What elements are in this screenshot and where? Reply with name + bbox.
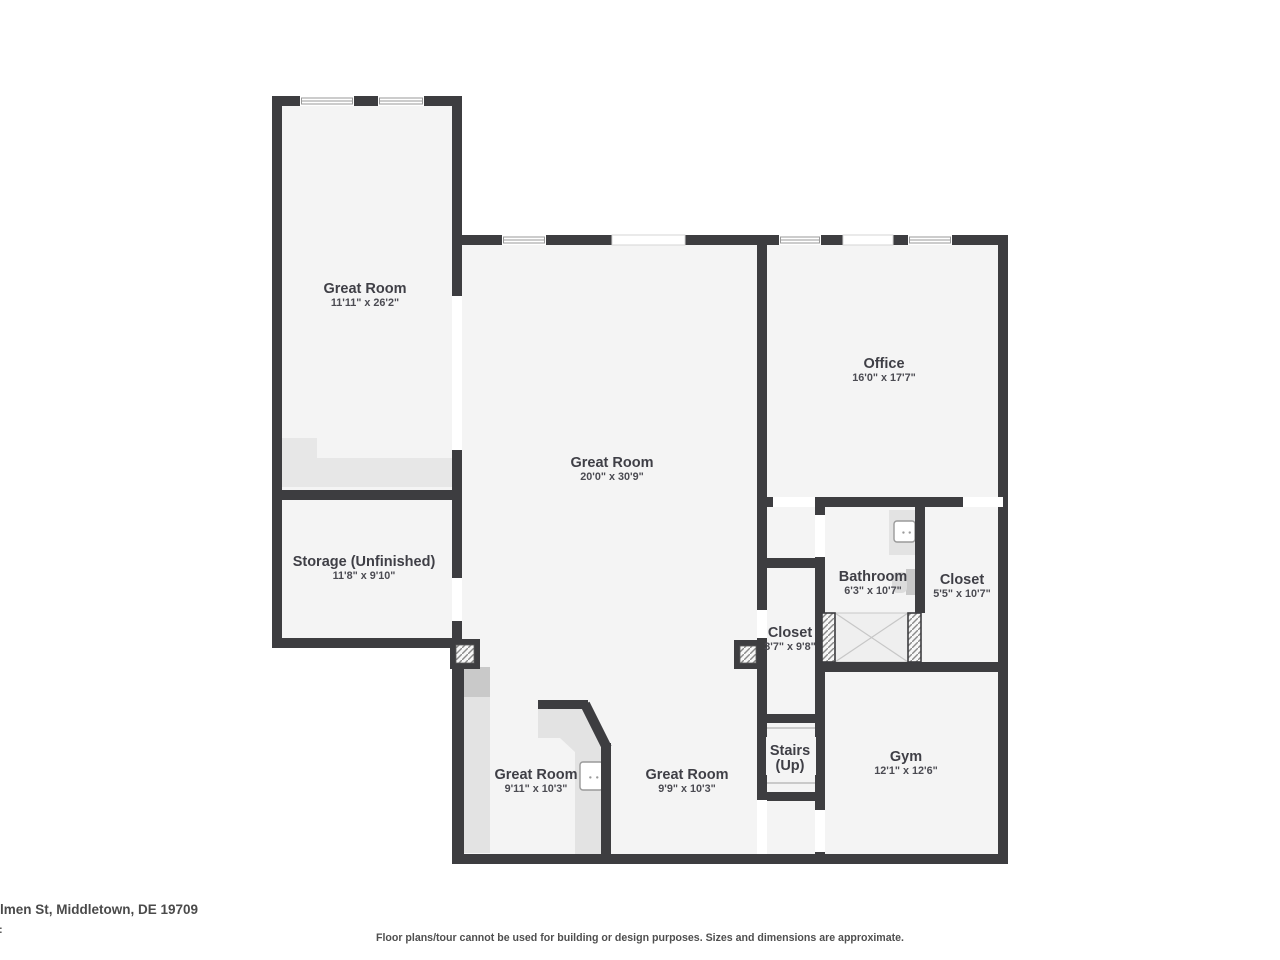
door-opening	[757, 610, 767, 638]
room-label-great-room: Great Room9'11" x 10'3"	[495, 767, 578, 795]
disclaimer-text: Floor plans/tour cannot be used for buil…	[0, 932, 1280, 944]
bathroom-sink	[894, 521, 915, 542]
wall	[452, 450, 462, 578]
wall	[272, 638, 462, 648]
wall	[757, 792, 822, 801]
room-label-great-room: Great Room11'11" x 26'2"	[324, 281, 407, 309]
wall	[815, 662, 1008, 672]
room-label-closet: Closet3'7" x 9'8"	[764, 625, 815, 653]
door-opening	[963, 497, 1003, 507]
room-dimensions: 9'9" x 10'3"	[658, 783, 715, 795]
room-dimensions: 9'11" x 10'3"	[505, 783, 568, 795]
room-name: Closet	[768, 625, 812, 641]
room-dimensions: 5'5" x 10'7"	[933, 588, 990, 600]
faucet-dot	[902, 531, 904, 533]
faucet-dot	[909, 531, 911, 533]
door-opening	[757, 800, 767, 854]
appliance	[460, 667, 490, 697]
jamb-hatch	[822, 613, 835, 662]
faucet-dot	[589, 776, 591, 778]
wall	[455, 854, 1008, 864]
room-dimensions: 11'11" x 26'2"	[331, 297, 399, 309]
wall	[452, 647, 464, 864]
room-name: Stairs	[770, 743, 810, 759]
wall	[757, 245, 767, 497]
wall	[272, 96, 282, 647]
door-opening	[452, 296, 462, 450]
room-label-stairs: Stairs(Up)	[770, 743, 810, 774]
column-hatch	[740, 646, 756, 663]
room-name: Great Room	[646, 767, 729, 783]
wall	[915, 507, 925, 613]
understairs-area	[277, 458, 453, 487]
door-opening	[815, 515, 825, 557]
door-opening	[452, 578, 462, 621]
door-opening	[773, 497, 815, 507]
room-name: Gym	[890, 749, 922, 765]
room-name-line2: (Up)	[776, 758, 805, 774]
jamb-hatch	[908, 613, 921, 662]
room-label-great-room: Great Room20'0" x 30'9"	[571, 455, 654, 483]
wall-opening	[612, 235, 685, 245]
room-name: Office	[863, 356, 904, 372]
column-hatch	[456, 645, 474, 663]
room-name: Great Room	[324, 281, 407, 297]
kitchen-sink	[580, 762, 603, 790]
wall	[538, 700, 588, 709]
faucet-dot	[596, 776, 598, 778]
room-name: Closet	[940, 572, 984, 588]
wall	[998, 235, 1008, 864]
wall	[272, 490, 462, 500]
floor-plan: Great Room11'11" x 26'2"Great Room20'0" …	[0, 0, 1280, 960]
wall	[757, 558, 825, 568]
room-dimensions: 11'8" x 9'10"	[333, 570, 396, 582]
room-label-bathroom: Bathroom6'3" x 10'7"	[839, 569, 907, 597]
room-name: Great Room	[571, 455, 654, 471]
room-dimensions: 3'7" x 9'8"	[764, 641, 815, 653]
wall	[601, 743, 611, 864]
room-name: Bathroom	[839, 569, 907, 585]
room-dimensions: 20'0" x 30'9"	[580, 471, 643, 483]
counter-left	[462, 697, 490, 853]
room-dimensions: 16'0" x 17'7"	[852, 372, 915, 384]
wall	[452, 96, 462, 296]
room-dimensions: 6'3" x 10'7"	[844, 585, 901, 597]
room-name: Storage (Unfinished)	[293, 554, 436, 570]
wall-opening	[843, 235, 893, 245]
property-address: lmen St, Middletown, DE 19709	[0, 902, 198, 917]
room-dimensions: 12'1" x 12'6"	[874, 765, 937, 777]
room-name: Great Room	[495, 767, 578, 783]
wall	[757, 714, 822, 723]
room-label-closet: Closet5'5" x 10'7"	[933, 572, 990, 600]
door-opening	[815, 810, 825, 852]
